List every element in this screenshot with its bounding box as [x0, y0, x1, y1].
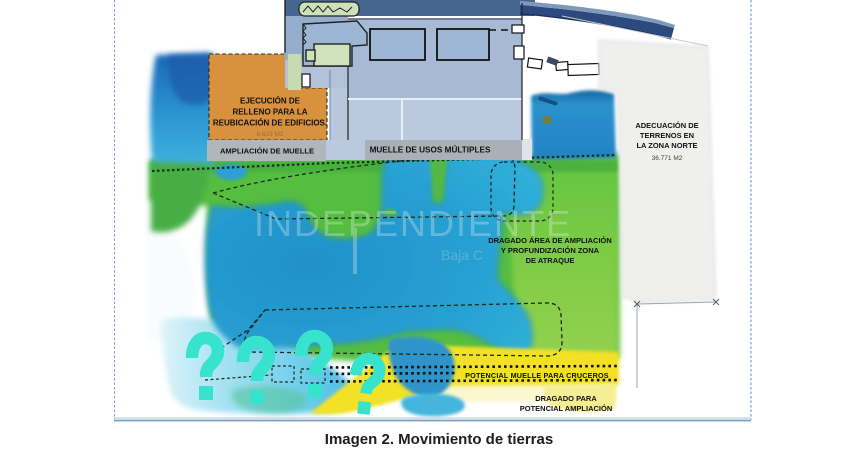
svg-text:TERRENOS EN: TERRENOS EN [640, 131, 694, 140]
svg-text:AMPLIACIÓN DE MUELLE: AMPLIACIÓN DE MUELLE [220, 147, 314, 156]
svg-text:INDEPENDIENTE: INDEPENDIENTE [254, 203, 572, 244]
svg-text:36.771 M2: 36.771 M2 [652, 155, 683, 162]
svg-text:8.623 M2: 8.623 M2 [256, 131, 283, 138]
svg-text:DE ATRAQUE: DE ATRAQUE [526, 256, 575, 265]
svg-text:RELLENO PARA LA: RELLENO PARA LA [232, 108, 307, 117]
svg-text:Y PROFUNDIZACIÓN ZONA: Y PROFUNDIZACIÓN ZONA [501, 246, 600, 255]
svg-text:POTENCIAL AMPLIACIÓN: POTENCIAL AMPLIACIÓN [520, 404, 613, 413]
svg-text:POTENCIAL MUELLE PARA CRUCEROS: POTENCIAL MUELLE PARA CRUCEROS [465, 371, 609, 380]
svg-text:EJECUCIÓN DE: EJECUCIÓN DE [240, 97, 301, 106]
svg-text:MUELLE DE USOS MÚLTIPLES: MUELLE DE USOS MÚLTIPLES [370, 144, 491, 155]
svg-text:Imagen 2. Movimiento de tierra: Imagen 2. Movimiento de tierras [325, 431, 553, 448]
svg-text:REUBICACIÓN DE EDIFICIOS.: REUBICACIÓN DE EDIFICIOS. [213, 119, 327, 128]
svg-text:ADECUACIÓN DE: ADECUACIÓN DE [635, 121, 698, 130]
svg-text:Baja C: Baja C [441, 247, 483, 263]
svg-text:LA ZONA NORTE: LA ZONA NORTE [636, 141, 697, 150]
svg-text:DRAGADO PARA: DRAGADO PARA [535, 394, 597, 403]
